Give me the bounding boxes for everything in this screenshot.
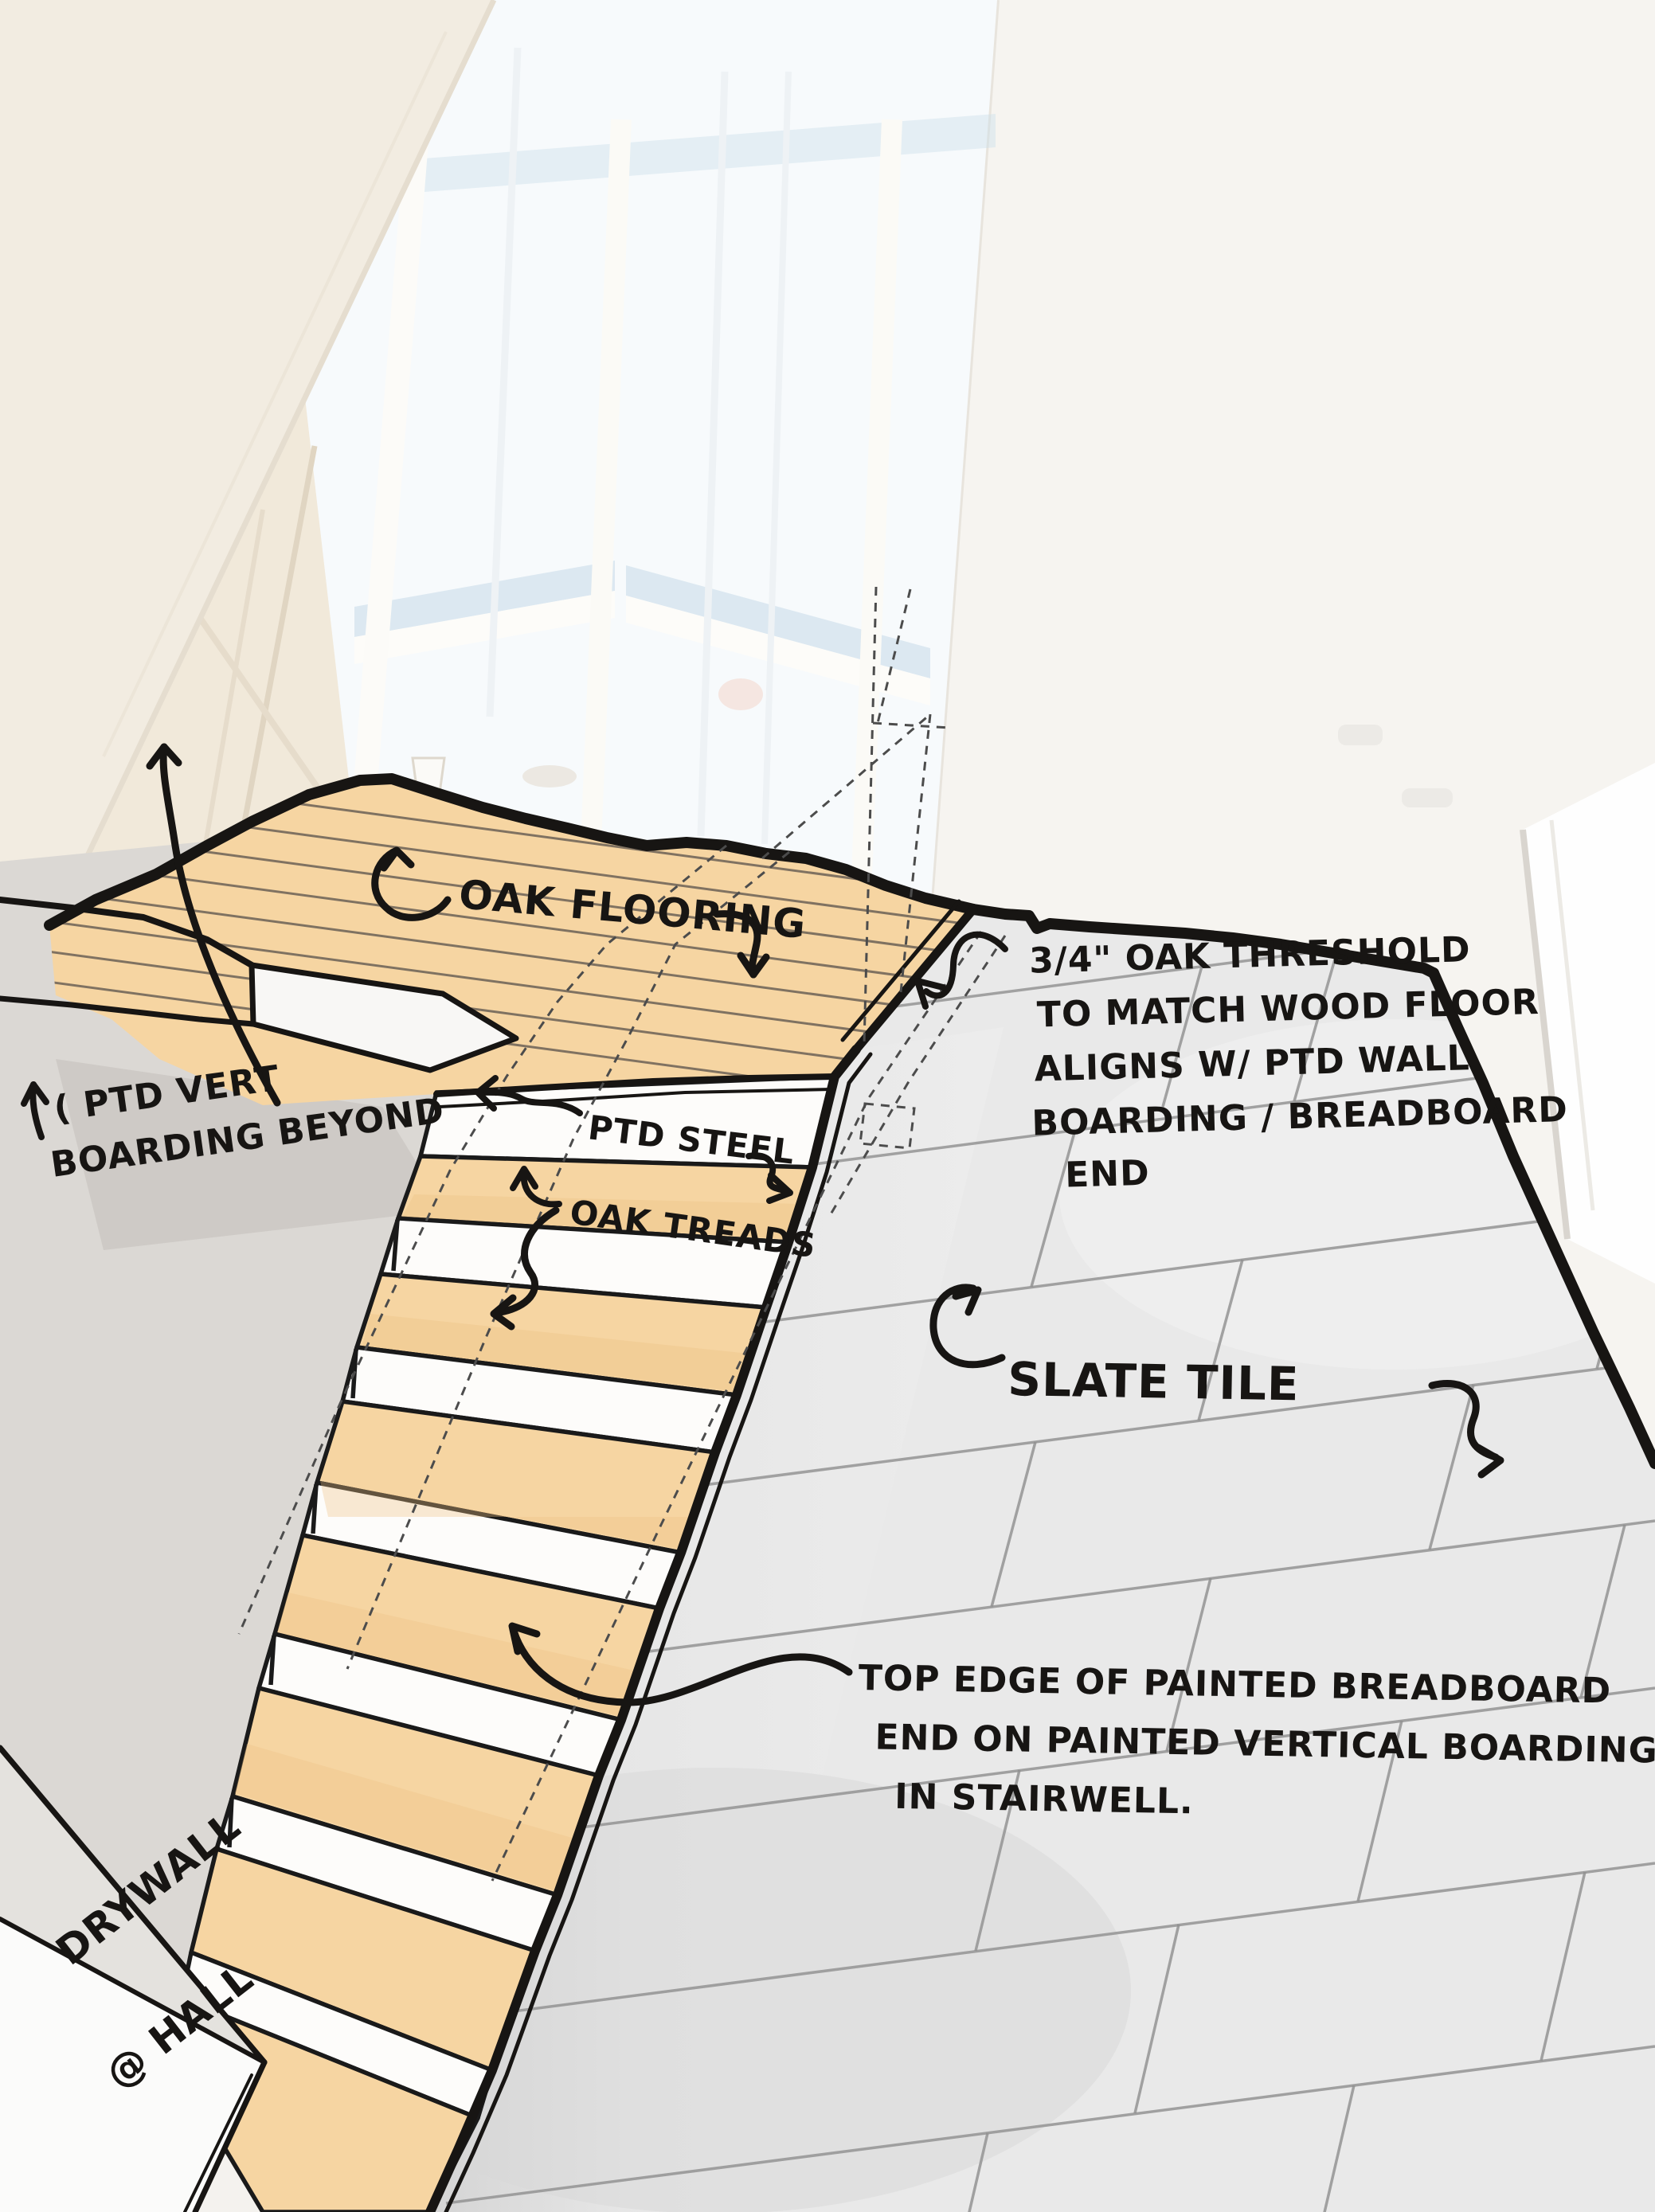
photo-debris: [718, 678, 763, 710]
sketch-canvas: OAK FLOORING 3/4" OAK THRESHOLD TO MATCH…: [0, 0, 1655, 2212]
photo-debris: [522, 765, 577, 787]
annotated-stair-sketch: OAK FLOORING 3/4" OAK THRESHOLD TO MATCH…: [0, 0, 1655, 2212]
slate-tile-label: SLATE TILE: [1007, 1352, 1300, 1411]
wall-patch-mark: [1402, 788, 1453, 807]
top-edge-note-line: IN STAIRWELL.: [894, 1776, 1194, 1823]
wall-patch-mark: [1338, 725, 1383, 745]
threshold-note-line: END: [1065, 1153, 1151, 1196]
